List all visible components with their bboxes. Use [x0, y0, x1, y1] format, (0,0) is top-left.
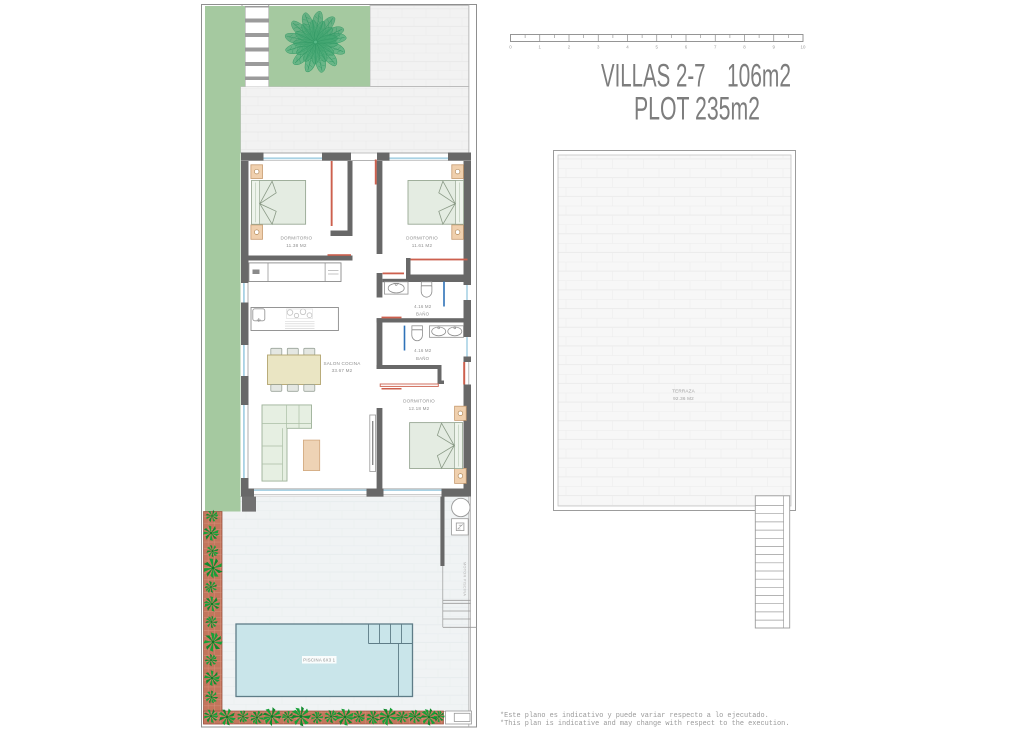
svg-text:4.16 M2: 4.16 M2: [414, 304, 432, 309]
svg-text:*Este plano es indicativo y pu: *Este plano es indicativo y puede variar…: [500, 712, 769, 720]
svg-text:VILLAS 2-7: VILLAS 2-7: [601, 58, 706, 94]
svg-text:DORMITORIO: DORMITORIO: [406, 236, 438, 241]
svg-text:TERRAZA: TERRAZA: [672, 389, 696, 394]
svg-text:DORMITORIO: DORMITORIO: [403, 399, 435, 404]
svg-text:10: 10: [801, 45, 806, 50]
svg-text:SALON COCINA: SALON COCINA: [323, 361, 361, 366]
svg-text:11.61 M2: 11.61 M2: [412, 243, 433, 248]
svg-text:PISCINA 6X3 1: PISCINA 6X3 1: [303, 658, 335, 663]
svg-text:MOTOR PISCINA: MOTOR PISCINA: [463, 562, 467, 596]
svg-text:12.18 M2: 12.18 M2: [409, 406, 430, 411]
svg-text:92.36 M2: 92.36 M2: [673, 396, 694, 401]
svg-text:*This plan is indicative and m: *This plan is indicative and may change …: [500, 720, 789, 728]
svg-text:11.38 M2: 11.38 M2: [286, 243, 307, 248]
svg-text:PLOT 235m2: PLOT 235m2: [634, 91, 760, 127]
svg-text:BAÑO: BAÑO: [416, 312, 430, 317]
svg-text:DORMITORIO: DORMITORIO: [281, 236, 313, 241]
svg-text:4.16 M2: 4.16 M2: [414, 348, 432, 353]
svg-text:BAÑO: BAÑO: [416, 356, 430, 361]
svg-text:106m2: 106m2: [727, 58, 791, 94]
svg-text:33.67 M2: 33.67 M2: [332, 368, 353, 373]
